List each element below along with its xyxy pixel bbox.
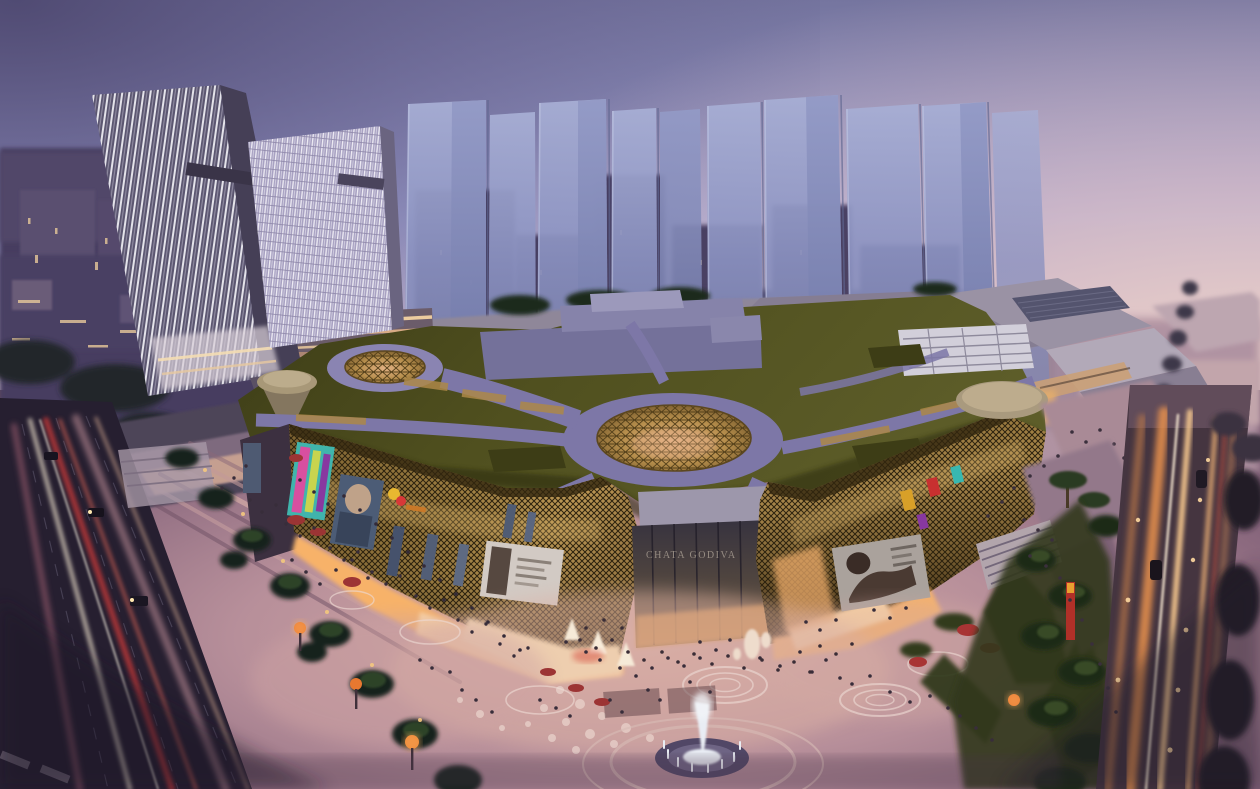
svg-text:CHATA GODIVA: CHATA GODIVA <box>646 550 737 561</box>
